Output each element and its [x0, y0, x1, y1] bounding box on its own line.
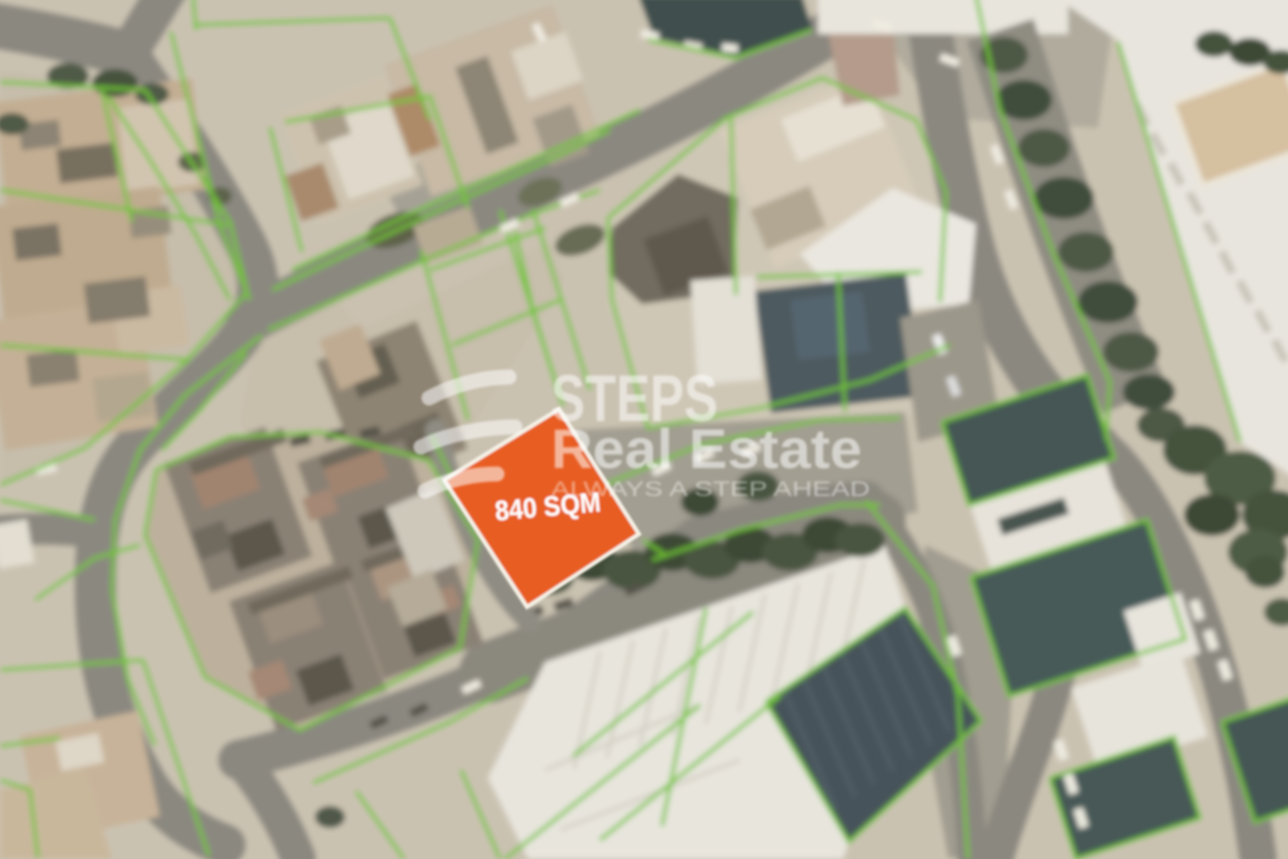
svg-text:Real Estate: Real Estate	[551, 417, 862, 480]
svg-text:ALWAYS A STEP AHEAD: ALWAYS A STEP AHEAD	[551, 478, 870, 501]
